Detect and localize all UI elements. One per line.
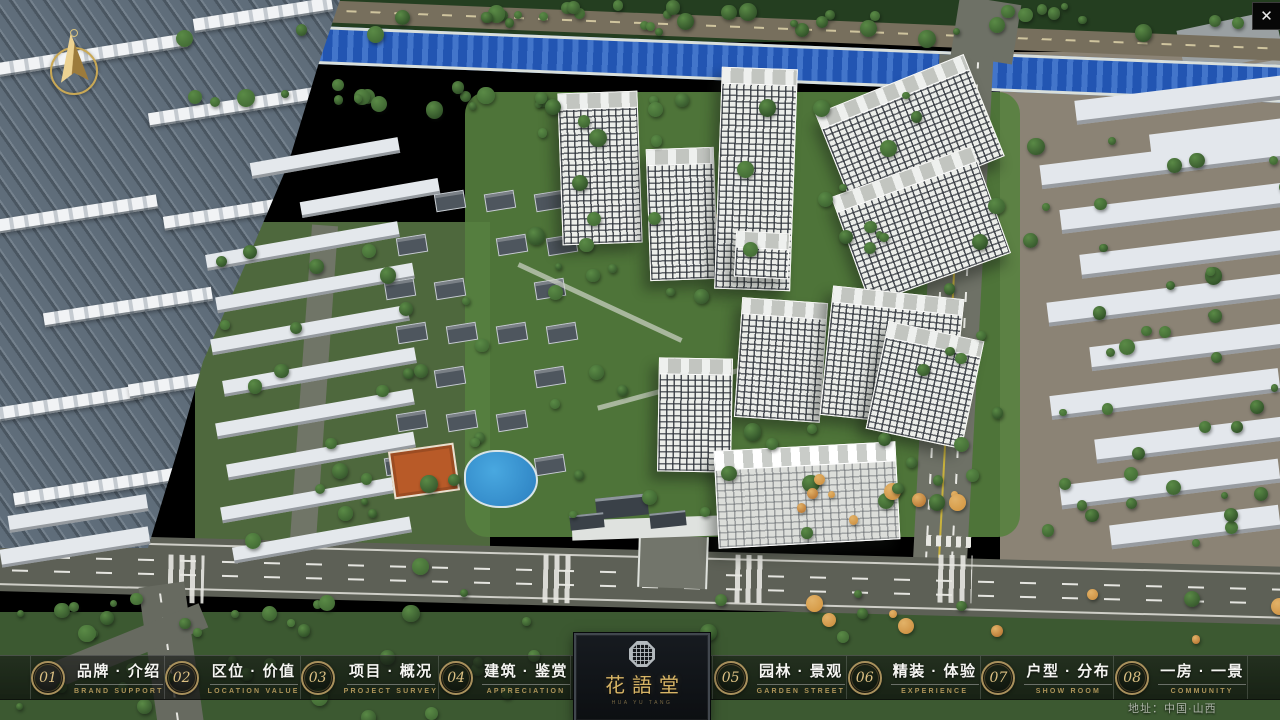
- scene-shape: [309, 259, 324, 274]
- scene-shape: [362, 244, 376, 258]
- compass-north-indicator: [46, 33, 100, 97]
- scene-shape: [420, 475, 438, 493]
- scene-shape: [367, 26, 384, 43]
- scene-shape: [880, 140, 897, 157]
- nav-text: 建筑 · 鉴赏 APPRECIATION: [482, 660, 570, 695]
- scene-shape: [376, 385, 389, 398]
- nav-item-views[interactable]: 08 一房 · 一景 COMMUNITY: [1113, 656, 1248, 699]
- scene-shape: [1042, 524, 1054, 536]
- nav-text: 品牌 · 介绍 BRAND SUPPORT: [74, 660, 164, 695]
- scene-shape: [864, 242, 876, 254]
- scene-shape: [210, 97, 220, 107]
- scene-shape: [538, 128, 547, 137]
- scene-shape: [462, 297, 470, 305]
- scene-shape: [1199, 421, 1211, 433]
- scene-shape: [972, 234, 988, 250]
- nav-item-location[interactable]: 02 区位 · 价值 LOCATION VALUE: [164, 656, 300, 699]
- scene-shape: [737, 161, 754, 178]
- scene-shape: [608, 264, 617, 273]
- scene-shape: [651, 135, 662, 146]
- scene-shape: [807, 424, 817, 434]
- scene-shape: [1211, 352, 1222, 363]
- scene-shape: [354, 94, 362, 102]
- scene-shape: [849, 515, 859, 525]
- scene-shape: [425, 707, 438, 720]
- scene-shape: [1037, 4, 1048, 15]
- scene-shape: [715, 594, 727, 606]
- scene-shape: [878, 433, 891, 446]
- nav-item-garden[interactable]: 05 园林 · 景观 GARDEN STREET: [712, 656, 846, 699]
- scene-shape: [1124, 467, 1138, 481]
- scene-shape: [403, 368, 414, 379]
- scene-shape: [739, 3, 757, 21]
- scene-shape: [906, 457, 917, 468]
- scene-shape: [179, 618, 190, 629]
- scene-shape: [361, 473, 372, 484]
- scene-shape: [642, 490, 657, 505]
- nav-num: 06: [856, 670, 874, 686]
- nav-num: 05: [722, 670, 740, 686]
- compass-pin-icon: [70, 29, 78, 37]
- scene-shape: [721, 5, 737, 21]
- scene-shape: [1250, 400, 1264, 414]
- scene-shape: [911, 111, 922, 122]
- scene-shape: [586, 269, 599, 282]
- nav-item-architecture[interactable]: 04 建筑 · 鉴赏 APPRECIATION: [438, 656, 571, 699]
- scene-shape: [231, 610, 239, 618]
- scene-shape: [744, 423, 762, 441]
- scene-shape: [992, 407, 1003, 418]
- nav-caption: GARDEN STREET: [757, 688, 846, 695]
- scene-shape: [766, 438, 778, 450]
- scene-shape: [1099, 244, 1107, 252]
- nav-caption: COMMUNITY: [1171, 688, 1234, 695]
- close-icon: ✕: [1260, 9, 1273, 24]
- scene-shape: [380, 267, 397, 284]
- scene-shape: [1167, 158, 1182, 173]
- nav-num-badge: 05: [714, 661, 748, 695]
- nav-caption: PROJECT SURVEY: [344, 688, 438, 695]
- scene-shape: [956, 601, 966, 611]
- scene-shape: [1189, 153, 1205, 169]
- scene-shape: [332, 79, 344, 91]
- brand-seal-inner-icon: [632, 644, 653, 665]
- nav-num: 03: [309, 670, 327, 686]
- scene-shape: [1209, 15, 1221, 27]
- scene-shape: [245, 533, 261, 549]
- scene-shape: [193, 628, 202, 637]
- nav-item-project[interactable]: 03 项目 · 概况 PROJECT SURVEY: [300, 656, 438, 699]
- nav-label: 区位 · 价值: [210, 660, 298, 685]
- scene-shape: [989, 17, 1005, 33]
- scene-shape: [78, 625, 96, 643]
- nav-item-interior[interactable]: 06 精装 · 体验 EXPERIENCE: [846, 656, 980, 699]
- scene-shape: [860, 20, 877, 37]
- scene-shape: [666, 0, 681, 15]
- scene-shape: [1192, 635, 1200, 643]
- scene-shape: [1102, 403, 1114, 415]
- scene-shape: [722, 68, 797, 87]
- scene-shape: [434, 190, 466, 212]
- scene-shape: [361, 710, 376, 720]
- nav-num-badge: 02: [165, 661, 199, 695]
- scene-shape: [414, 364, 428, 378]
- scene-shape: [1232, 17, 1244, 29]
- nav-text: 户型 · 分布 SHOW ROOM: [1024, 660, 1112, 695]
- brand-title: 花語堂: [598, 669, 686, 698]
- scene-shape: [514, 11, 522, 19]
- scene-shape: [527, 227, 545, 245]
- scene-shape: [734, 231, 790, 280]
- scene-shape: [1166, 480, 1181, 495]
- scene-shape: [412, 558, 429, 575]
- scene-shape: [892, 483, 904, 495]
- scene-shape: [1048, 7, 1061, 20]
- scene-shape: [857, 608, 868, 619]
- scene-shape: [1231, 421, 1243, 433]
- nav-num-badge: 07: [981, 661, 1015, 695]
- scene-shape: [481, 12, 492, 23]
- scene-shape: [248, 379, 262, 393]
- scene-shape: [933, 475, 944, 486]
- scene-shape: [1059, 478, 1071, 490]
- scene-shape: [1018, 8, 1032, 22]
- scene-shape: [334, 95, 344, 105]
- scene-shape: [1078, 16, 1086, 24]
- scene-shape: [991, 625, 1004, 638]
- scene-shape: [505, 18, 514, 27]
- scene-shape: [675, 93, 689, 107]
- brand-subtitle: HUA YU TANG: [612, 700, 673, 706]
- nav-text: 一房 · 一景 COMMUNITY: [1158, 660, 1246, 695]
- scene-shape: [545, 99, 561, 115]
- brand-logo-panel[interactable]: 花語堂 HUA YU TANG: [574, 633, 710, 720]
- scene-shape: [319, 595, 335, 611]
- nav-item-brand[interactable]: 01 品牌 · 介绍 BRAND SUPPORT: [30, 656, 164, 699]
- scene-shape: [648, 102, 663, 117]
- scene-shape: [743, 242, 758, 257]
- nav-num: 01: [39, 670, 57, 686]
- scene-shape: [296, 24, 307, 35]
- scene-shape: [69, 602, 79, 612]
- scene-shape: [1254, 487, 1268, 501]
- scene-shape: [918, 30, 936, 48]
- scene-shape: [759, 99, 777, 117]
- scene-shape: [100, 611, 114, 625]
- scene-shape: [448, 474, 460, 486]
- scene-shape: [1087, 589, 1098, 600]
- scene-shape: [1159, 326, 1171, 338]
- scene-shape: [666, 288, 675, 297]
- scene-shape: [220, 320, 230, 330]
- scene-shape: [1184, 591, 1200, 607]
- scene-shape: [637, 535, 709, 589]
- scene-shape: [721, 466, 736, 481]
- scene-shape: [937, 555, 972, 604]
- nav-caption: BRAND SUPPORT: [74, 688, 164, 695]
- close-button[interactable]: ✕: [1252, 2, 1280, 30]
- scene-shape: [460, 589, 468, 597]
- scene-shape: [1126, 498, 1137, 509]
- scene-shape: [361, 498, 368, 505]
- nav-text: 园林 · 景观 GARDEN STREET: [757, 660, 846, 695]
- scene-shape: [1108, 137, 1116, 145]
- scene-shape: [589, 129, 607, 147]
- scene-shape: [110, 600, 117, 607]
- scene-shape: [243, 245, 257, 259]
- nav-label: 精装 · 体验: [891, 660, 979, 685]
- nav-caption: APPRECIATION: [487, 688, 566, 695]
- nav-num: 04: [447, 670, 465, 686]
- scene-shape: [1093, 306, 1106, 319]
- scene-shape: [1059, 409, 1066, 416]
- map-3d-view[interactable]: [0, 0, 1280, 720]
- nav-label: 园林 · 景观: [757, 660, 845, 685]
- nav-num-badge: 01: [31, 661, 65, 695]
- scene-shape: [188, 90, 202, 104]
- nav-caption: SHOW ROOM: [1036, 688, 1101, 695]
- scene-shape: [399, 302, 413, 316]
- scene-shape: [1027, 138, 1045, 156]
- nav-num-badge: 06: [848, 661, 882, 695]
- scene-shape: [1077, 500, 1088, 511]
- scene-shape: [579, 238, 593, 252]
- nav-caption: LOCATION VALUE: [208, 688, 300, 695]
- nav-text: 区位 · 价值 LOCATION VALUE: [208, 660, 300, 695]
- nav-label: 户型 · 分布: [1024, 660, 1112, 685]
- nav-num-badge: 03: [301, 661, 335, 695]
- scene-shape: [976, 331, 985, 340]
- scene-shape: [807, 488, 818, 499]
- scene-shape: [368, 509, 377, 518]
- scene-shape: [426, 101, 444, 119]
- scene-shape: [734, 555, 765, 604]
- scene-shape: [988, 198, 1004, 214]
- scene-shape: [281, 90, 289, 98]
- scene-shape: [837, 631, 849, 643]
- brand-seal-icon: [629, 641, 655, 667]
- nav-label: 建筑 · 鉴赏: [482, 660, 570, 685]
- scene-shape: [542, 555, 573, 604]
- scene-shape: [287, 619, 294, 626]
- scene-shape: [176, 30, 193, 47]
- scene-shape: [818, 192, 833, 207]
- nav-label: 品牌 · 介绍: [75, 660, 163, 685]
- nav-num-badge: 08: [1115, 661, 1149, 695]
- scene-shape: [742, 298, 827, 320]
- scene-shape: [338, 506, 353, 521]
- scene-shape: [828, 491, 835, 498]
- scene-shape: [137, 699, 152, 714]
- scene-shape: [700, 507, 710, 517]
- scene-shape: [806, 595, 823, 612]
- scene-shape: [558, 92, 637, 111]
- scene-shape: [801, 527, 812, 538]
- scene-shape: [469, 102, 476, 109]
- scene-shape: [953, 28, 960, 35]
- scene-shape: [54, 603, 69, 618]
- nav-caption: EXPERIENCE: [901, 688, 968, 695]
- project-address: 地址：中国·山西: [1128, 700, 1217, 716]
- scene-shape: [917, 364, 930, 377]
- scene-shape: [734, 297, 828, 423]
- scene-shape: [1166, 281, 1175, 290]
- scene-shape: [813, 100, 830, 117]
- scene-shape: [660, 358, 732, 375]
- nav-label: 项目 · 概况: [347, 660, 435, 685]
- app-window: ✕ 01 品牌 · 介绍 BRAND SUPPORT 02 区位 · 价值 LO…: [0, 0, 1280, 720]
- nav-text: 精装 · 体验 EXPERIENCE: [891, 660, 979, 695]
- scene-shape: [298, 624, 310, 636]
- scene-shape: [955, 353, 967, 365]
- scene-shape: [1206, 267, 1215, 276]
- nav-item-floorplan[interactable]: 07 户型 · 分布 SHOW ROOM: [980, 656, 1114, 699]
- scene-shape: [262, 606, 277, 621]
- nav-num: 02: [173, 670, 191, 686]
- scene-shape: [816, 16, 828, 28]
- scene-shape: [1141, 326, 1151, 336]
- scene-shape: [464, 450, 538, 508]
- scene-shape: [1001, 5, 1014, 18]
- scene-shape: [574, 470, 584, 480]
- nav-group-left: 01 品牌 · 介绍 BRAND SUPPORT 02 区位 · 价值 LOCA…: [30, 656, 567, 699]
- scene-shape: [371, 96, 387, 112]
- scene-shape: [797, 503, 806, 512]
- scene-shape: [237, 89, 255, 107]
- scene-shape: [912, 493, 926, 507]
- scene-shape: [1271, 384, 1278, 391]
- nav-num: 08: [1123, 670, 1141, 686]
- nav-num: 07: [990, 670, 1008, 686]
- scene-shape: [839, 184, 847, 192]
- nav-group-right: 05 园林 · 景观 GARDEN STREET 06 精装 · 体验 EXPE…: [712, 656, 1248, 699]
- scene-shape: [1023, 233, 1038, 248]
- scene-shape: [475, 339, 489, 353]
- scene-shape: [587, 212, 601, 226]
- nav-label: 一房 · 一景: [1158, 660, 1246, 685]
- nav-text: 项目 · 概况 PROJECT SURVEY: [344, 660, 438, 695]
- nav-num-badge: 04: [439, 661, 473, 695]
- scene-shape: [647, 148, 714, 166]
- scene-shape: [17, 610, 24, 617]
- scene-shape: [300, 178, 441, 218]
